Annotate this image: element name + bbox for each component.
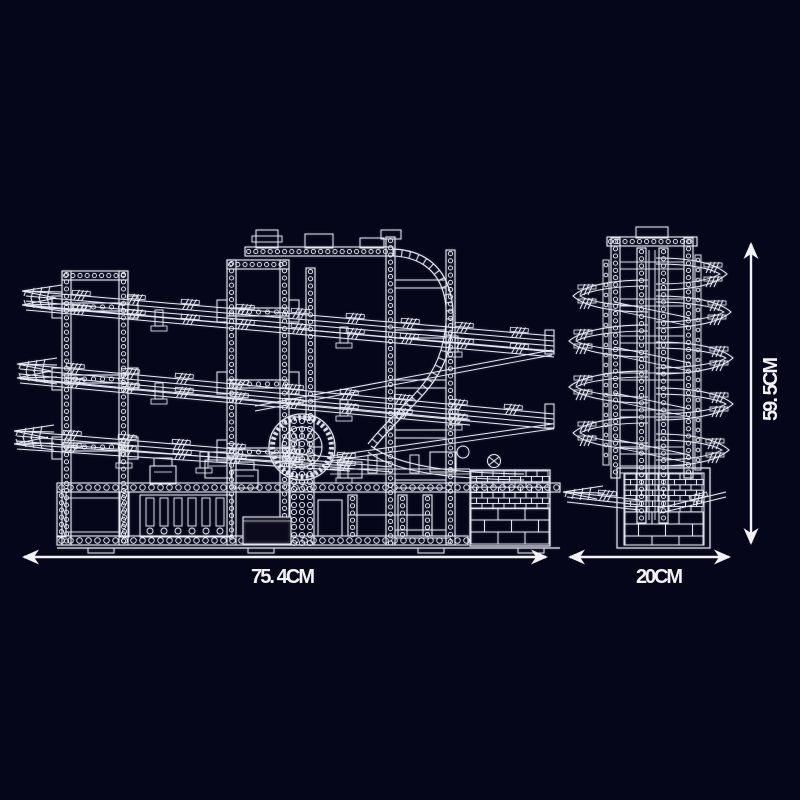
svg-text:20CM: 20CM — [636, 566, 683, 588]
svg-text:75. 4CM: 75. 4CM — [251, 566, 315, 588]
svg-text:59. 5CM: 59. 5CM — [760, 357, 782, 421]
